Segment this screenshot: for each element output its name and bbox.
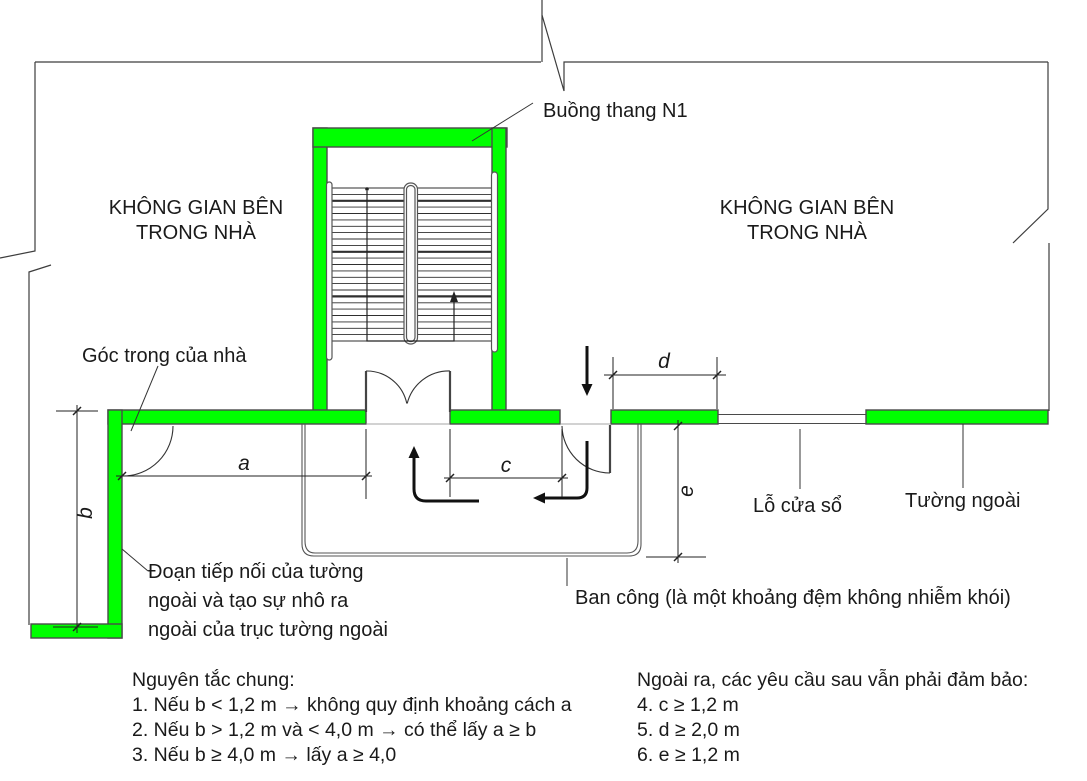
- notes-right-heading: Ngoài ra, các yêu cầu sau vẫn phải đảm b…: [637, 668, 1028, 691]
- svg-text:4. c ≥ 1,2 m: 4. c ≥ 1,2 m: [637, 694, 739, 716]
- left-break-icon: [0, 62, 35, 258]
- inner-corner-arc: [123, 426, 173, 476]
- left-return-wall: [108, 410, 122, 638]
- main-wall-left: [108, 410, 366, 424]
- interior-space-left-label: KHÔNG GIAN BÊN TRONG NHÀ: [109, 196, 283, 244]
- window-label: Lỗ cửa sổ: [753, 494, 842, 517]
- dim-a-label: a: [238, 452, 250, 475]
- right-handrail: [492, 172, 498, 352]
- outer-wall-label: Tường ngoài: [905, 490, 1020, 512]
- floor-plan-diagram: a b c d e: [0, 0, 1087, 781]
- dim-e-label: e: [675, 485, 698, 497]
- notes-right: Ngoài ra, các yêu cầu sau vẫn phải đảm b…: [637, 668, 1028, 766]
- main-wall-d: [611, 410, 718, 424]
- notes-left: Nguyên tắc chung: 1. Nếu b < 1,2 m → khô…: [132, 668, 572, 766]
- svg-text:ngoài của trục tường ngoài: ngoài của trục tường ngoài: [148, 619, 388, 641]
- right-break-icon: [1013, 62, 1048, 243]
- svg-text:KHÔNG GIAN BÊN: KHÔNG GIAN BÊN: [109, 196, 283, 219]
- dim-d-label: d: [658, 350, 671, 373]
- stair-label: Buồng thang N1: [543, 100, 688, 122]
- inner-corner-label: Góc trong của nhà: [82, 345, 247, 367]
- svg-text:Đoạn tiếp nối của tường: Đoạn tiếp nối của tường: [148, 561, 364, 583]
- dimension-d: d: [604, 350, 726, 409]
- main-wall-right: [866, 410, 1048, 424]
- dimension-a: a: [116, 429, 372, 499]
- plan-svg: a b c d e: [0, 0, 1087, 781]
- interior-space-right-label: KHÔNG GIAN BÊN TRONG NHÀ: [720, 196, 894, 244]
- svg-text:1. Nếu b < 1,2 m → không quy đ: 1. Nếu b < 1,2 m → không quy định khoảng…: [132, 694, 572, 716]
- window-opening: [718, 415, 866, 424]
- dim-c-label: c: [501, 454, 512, 477]
- svg-text:TRONG NHÀ: TRONG NHÀ: [747, 221, 868, 244]
- boundary-break-lines: [0, 0, 1049, 625]
- dimension-b: b: [53, 405, 98, 633]
- balcony-outline: [302, 424, 641, 556]
- wall-extension-label: Đoạn tiếp nối của tường ngoài và tạo sự …: [148, 561, 388, 641]
- svg-text:TRONG NHÀ: TRONG NHÀ: [136, 221, 257, 244]
- top-break-icon: [542, 0, 1048, 91]
- balcony-label: Ban công (là một khoảng đệm không nhiễm …: [575, 586, 1011, 609]
- svg-text:KHÔNG GIAN BÊN: KHÔNG GIAN BÊN: [720, 196, 894, 219]
- svg-text:5. d ≥ 2,0 m: 5. d ≥ 2,0 m: [637, 719, 740, 741]
- stair-double-door: [366, 371, 450, 412]
- dimension-e: e: [646, 420, 706, 563]
- svg-text:3. Nếu b ≥ 4,0 m → lấy a ≥ 4,0: 3. Nếu b ≥ 4,0 m → lấy a ≥ 4,0: [132, 744, 396, 766]
- dimension-c: c: [444, 429, 568, 497]
- dim-b-label: b: [74, 507, 97, 519]
- svg-text:ngoài và tạo sự nhô ra: ngoài và tạo sự nhô ra: [148, 590, 349, 612]
- notes-left-heading: Nguyên tắc chung:: [132, 668, 295, 691]
- stair-left-wall: [313, 128, 327, 412]
- left-handrail: [327, 182, 333, 360]
- main-wall-mid: [450, 410, 560, 424]
- svg-text:6. e ≥ 1,2 m: 6. e ≥ 1,2 m: [637, 744, 740, 766]
- svg-text:2. Nếu b > 1,2 m và < 4,0 m →: 2. Nếu b > 1,2 m và < 4,0 m → có thể lấy…: [132, 719, 536, 741]
